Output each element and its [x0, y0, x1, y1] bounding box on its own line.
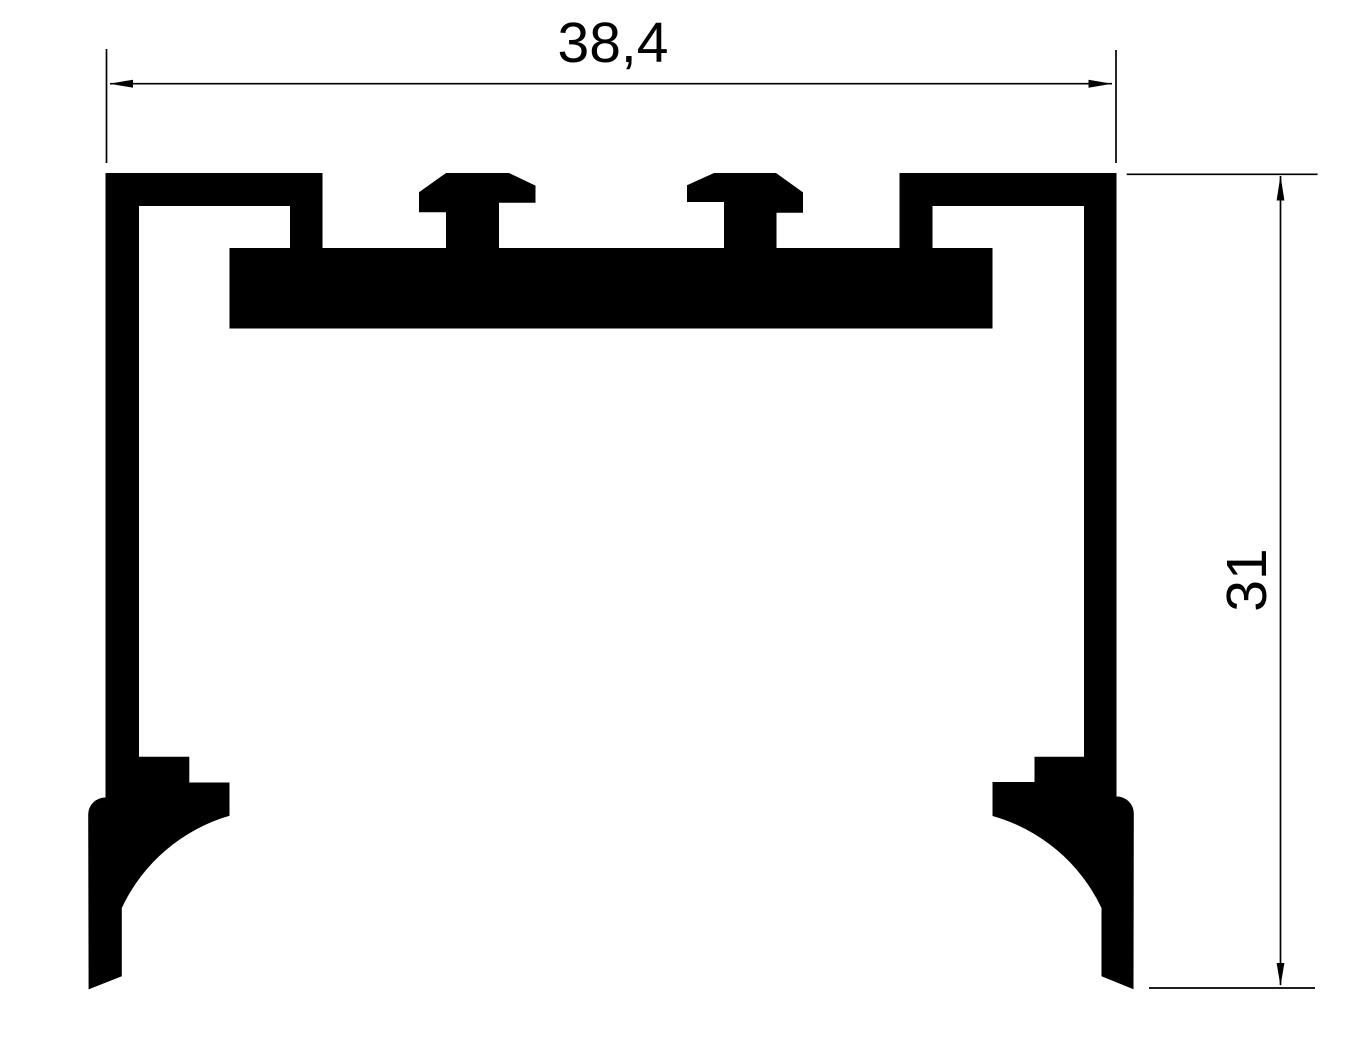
svg-text:38,4: 38,4 — [558, 11, 669, 75]
svg-text:31: 31 — [1215, 548, 1279, 611]
